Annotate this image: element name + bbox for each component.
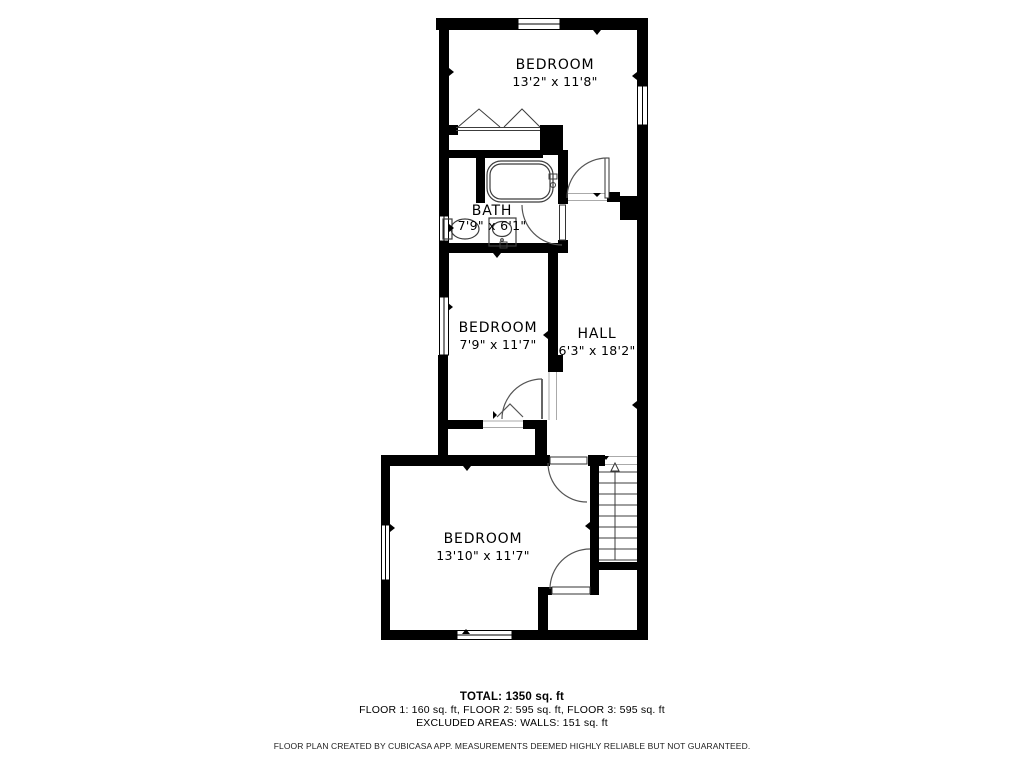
summary-footer: TOTAL: 1350 sq. ft FLOOR 1: 160 sq. ft, …	[0, 690, 1024, 751]
room-label-bath: BATH 7'9" x 6'1"	[458, 205, 527, 232]
bathtub	[487, 161, 557, 202]
door-leaf-bath	[560, 205, 566, 240]
room-name: BATH	[458, 205, 527, 218]
excluded-areas-text: EXCLUDED AREAS: WALLS: 151 sq. ft	[0, 717, 1024, 730]
room-label-bedroom-middle: BEDROOM 7'9" x 11'7"	[459, 321, 538, 352]
door-arc-bath	[522, 205, 562, 245]
room-label-bedroom-top: BEDROOM 13'2" x 11'8"	[512, 58, 597, 89]
door-arc-top-bedroom	[567, 158, 607, 198]
disclaimer-text: FLOOR PLAN CREATED BY CUBICASA APP. MEAS…	[0, 741, 1024, 751]
door-leaf-bottom-bedroom	[550, 457, 587, 464]
room-name: BEDROOM	[459, 321, 538, 336]
floor-plan-page: BEDROOM 13'2" x 11'8" BATH 7'9" x 6'1" B…	[0, 0, 1024, 768]
room-label-bedroom-bottom: BEDROOM 13'10" x 11'7"	[436, 532, 530, 563]
floor-plan-svg	[0, 0, 1024, 768]
room-dimensions: 7'9" x 11'7"	[459, 337, 538, 352]
door-fold-marker	[497, 404, 523, 417]
room-name: BEDROOM	[436, 532, 530, 547]
door-arc-middle-bedroom	[502, 379, 542, 419]
door-arc-bottom-bedroom	[548, 463, 587, 502]
total-area-text: TOTAL: 1350 sq. ft	[0, 690, 1024, 704]
stairs-group	[599, 463, 637, 560]
room-dimensions: 13'2" x 11'8"	[512, 74, 597, 89]
closet-bifold-doors	[456, 109, 540, 131]
door-leaf-bottom-right-room	[552, 587, 590, 594]
room-name: BEDROOM	[512, 58, 597, 73]
room-dimensions: 6'3" x 18'2"	[558, 343, 635, 358]
door-leaf-top-bedroom	[605, 158, 609, 198]
door-arc-bottom-right-room	[550, 549, 590, 589]
room-dimensions: 13'10" x 11'7"	[436, 548, 530, 563]
room-label-hall: HALL 6'3" x 18'2"	[558, 327, 635, 358]
room-dimensions: 7'9" x 6'1"	[458, 219, 527, 232]
room-name: HALL	[558, 327, 635, 342]
floor-breakdown-text: FLOOR 1: 160 sq. ft, FLOOR 2: 595 sq. ft…	[0, 704, 1024, 717]
